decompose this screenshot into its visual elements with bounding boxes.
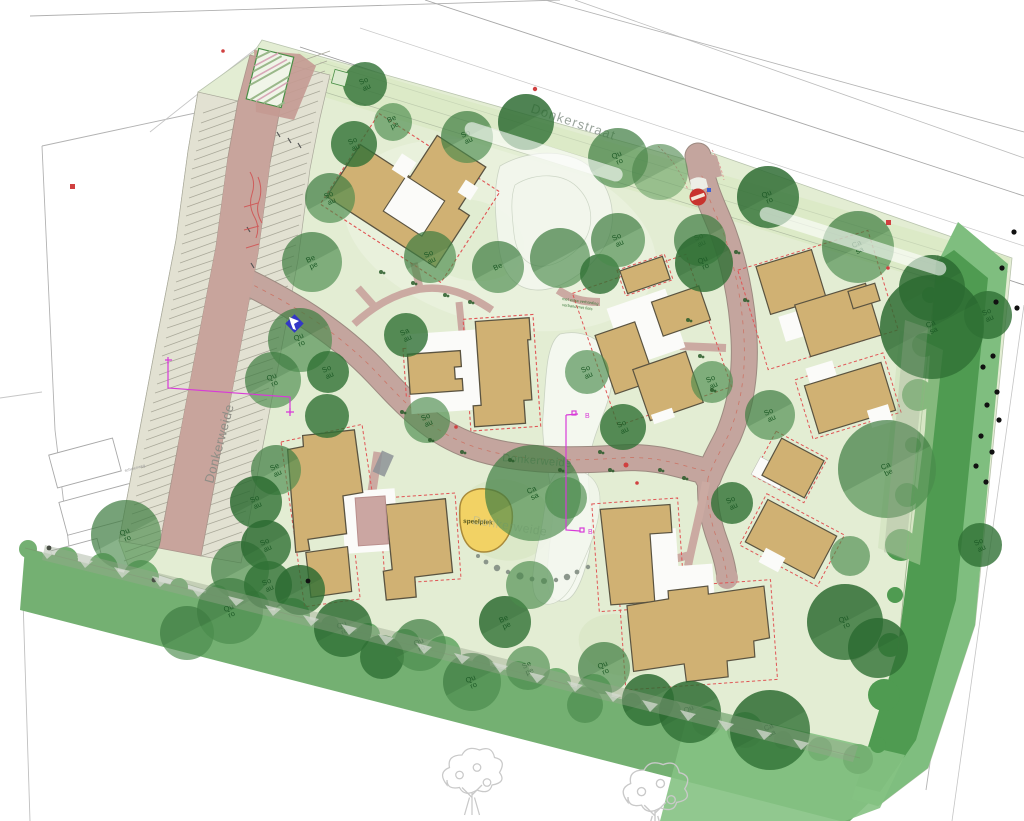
svg-text:B: B [585,413,590,420]
svg-text:B: B [588,529,593,536]
